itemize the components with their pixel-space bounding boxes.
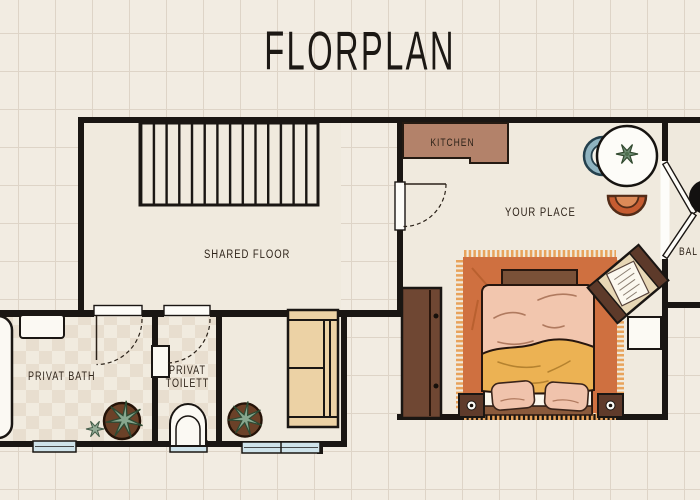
wall-bath-top-b (142, 310, 164, 317)
wall-right-a (662, 123, 668, 162)
room-label-your-place: YOUR PLACE (505, 206, 576, 219)
nightstand (459, 394, 484, 417)
sofa (288, 310, 338, 427)
room-label-kitchen: KITCHEN (405, 136, 500, 148)
wardrobe (402, 288, 441, 418)
pillow (491, 380, 535, 411)
room-label-privat-toilett-line2: TOILETT (158, 377, 217, 390)
floor-plan: FLORPLAN KITCHEN YOUR PLACE SHARED FLOOR… (0, 0, 700, 500)
wall-left (78, 117, 84, 316)
page-title: FLORPLAN (264, 20, 436, 82)
side-table (628, 317, 661, 349)
window (33, 441, 76, 452)
wall-top (78, 117, 700, 123)
staircase (140, 123, 318, 205)
wall-balcony-bottom (662, 302, 700, 308)
toilet (170, 404, 206, 446)
room-label-shared-floor: SHARED FLOOR (204, 248, 290, 261)
wall-shared-right (341, 317, 347, 447)
room-label-privat-bath: PRIVAT BATH (28, 370, 95, 383)
balcony-door-opening (661, 161, 670, 259)
room-label-balcony: BAL (679, 245, 698, 257)
bath-sink (20, 315, 64, 338)
pillow (544, 382, 589, 412)
window (242, 442, 320, 453)
nightstand (598, 394, 623, 417)
room-label-privat-toilett-line1: PRIVAT (158, 364, 217, 377)
bathtub (0, 316, 12, 438)
